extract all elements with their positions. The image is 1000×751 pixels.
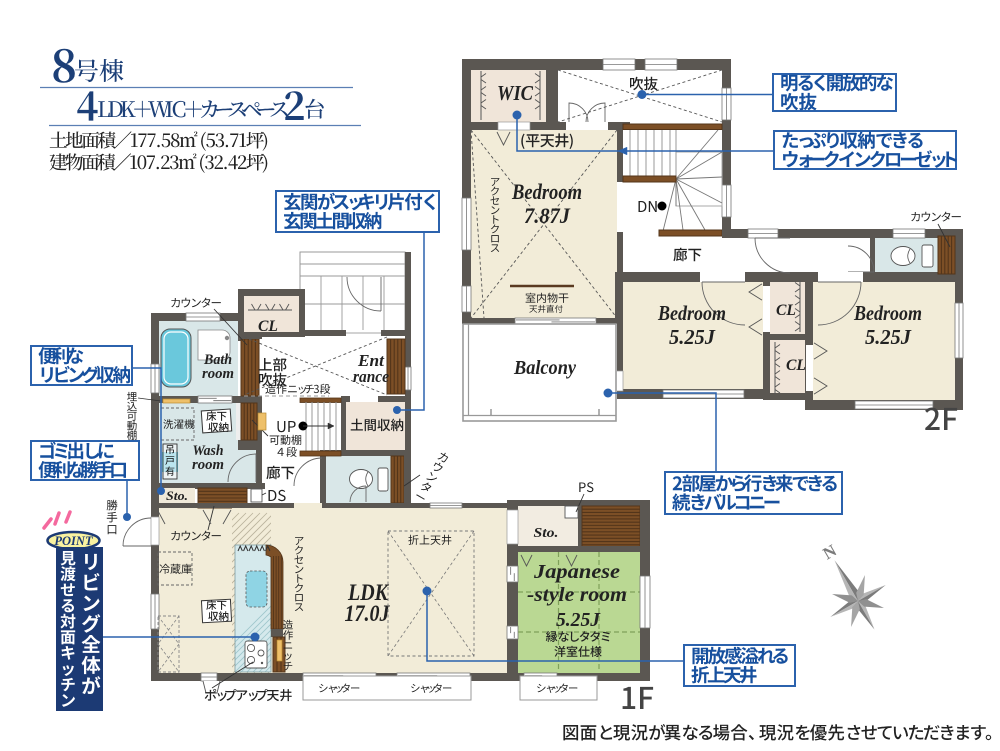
svg-text:Bedroom: Bedroom [853, 301, 922, 325]
svg-text:7.87J: 7.87J [524, 203, 571, 228]
svg-text:Balcony: Balcony [513, 357, 576, 379]
svg-text:CL: CL [776, 302, 796, 319]
svg-text:Bedroom: Bedroom [657, 301, 726, 325]
svg-text:5.25J: 5.25J [865, 325, 912, 349]
svg-text:-style room: -style room [527, 584, 627, 606]
svg-text:Sto.: Sto. [166, 488, 188, 503]
svg-text:room: room [202, 366, 234, 382]
svg-text:rance: rance [353, 367, 389, 386]
svg-text:17.0J: 17.0J [345, 601, 391, 626]
svg-text:CL: CL [258, 318, 278, 335]
svg-text:POINT: POINT [54, 534, 94, 548]
svg-text:5.25J: 5.25J [556, 609, 601, 631]
svg-text:room: room [192, 457, 224, 473]
svg-text:WIC: WIC [497, 81, 534, 105]
svg-text:Sto.: Sto. [534, 526, 559, 541]
svg-text:Bedroom: Bedroom [511, 179, 582, 204]
svg-text:Japanese: Japanese [533, 561, 620, 583]
svg-text:CL: CL [786, 357, 806, 374]
svg-text:5.25J: 5.25J [669, 325, 716, 349]
